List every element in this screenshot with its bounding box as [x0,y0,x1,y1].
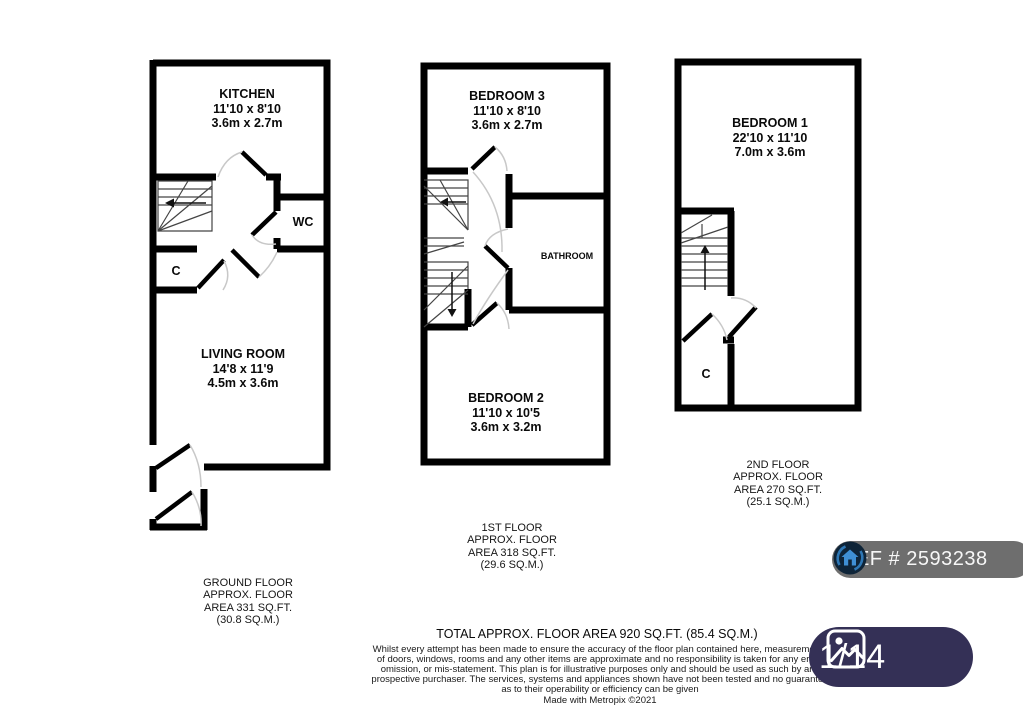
room-dims-metric: 3.6m x 3.2m [468,420,544,435]
room-name: LIVING ROOM [201,347,285,362]
made-with-credit: Made with Metropix ©2021 [543,696,656,706]
wc-door-leaf [252,212,276,235]
stair-outline [424,262,468,289]
ground-floor-area-label: GROUND FLOOR APPROX. FLOOR AREA 331 SQ.F… [203,577,293,626]
door-arc [712,314,727,340]
floor-area-sqft: AREA 318 SQ.FT. [467,547,557,559]
floor-approx: APPROX. FLOOR [203,589,293,601]
room-label-living-room: LIVING ROOM 14'8 x 11'9 4.5m x 3.6m [201,347,285,391]
room-name: BEDROOM 2 [468,391,544,406]
room-dims-imperial: 22'10 x 11'10 [732,131,808,146]
room-name: C [701,367,710,382]
room-dims-imperial: 14'8 x 11'9 [201,362,285,377]
floor-area-sqm: (29.6 SQ.M.) [467,559,557,571]
room-name: BEDROOM 3 [469,89,545,104]
ground-walls [150,60,327,530]
room-label-kitchen: KITCHEN 11'10 x 8'10 3.6m x 2.7m [212,87,283,131]
entrance-door-leaf-lower [156,492,192,519]
floorplan-image: KITCHEN 11'10 x 8'10 3.6m x 2.7m WC C LI… [0,0,1023,717]
floor-name: GROUND FLOOR [203,577,293,589]
floor-approx: APPROX. FLOOR [733,471,823,483]
ground-stairs [158,181,212,231]
door-arc [252,235,276,244]
living-door-leaf [232,250,259,277]
room-dims-metric: 7.0m x 3.6m [732,145,808,160]
stair-arrow-head [440,198,448,207]
door-arc [495,147,507,171]
stair-arrow-head [165,199,174,208]
door-arc [731,298,756,308]
bedroom3-door-leaf [472,147,495,169]
room-dims-imperial: 11'10 x 8'10 [212,102,283,117]
floor-area-sqm: (25.1 SQ.M.) [733,496,823,508]
room-dims-metric: 3.6m x 2.7m [212,116,283,131]
room-name: KITCHEN [212,87,283,102]
house-circle-icon [833,541,867,575]
door-arc [259,252,277,277]
room-name: BEDROOM 1 [732,116,808,131]
room-label-bedroom2: BEDROOM 2 11'10 x 10'5 3.6m x 3.2m [468,391,544,435]
second-floor-plan [678,62,858,408]
door-arc [485,229,508,246]
photo-icon [824,627,868,671]
photo-counter-badge[interactable]: 1/14 [809,627,973,687]
door-arc [223,261,228,290]
floor-area-sqft: AREA 331 SQ.FT. [203,602,293,614]
stair-winder [158,211,212,231]
first-floor-area-label: 1ST FLOOR APPROX. FLOOR AREA 318 SQ.FT. … [467,522,557,571]
stair-landing-line [424,242,464,254]
room-dims-metric: 3.6m x 2.7m [469,118,545,133]
room-dims-imperial: 11'10 x 8'10 [469,104,545,119]
stair-winder [424,266,468,310]
floor-area-sqm: (30.8 SQ.M.) [203,614,293,626]
bathroom-door-leaf [485,246,508,268]
room-dims-imperial: 11'10 x 10'5 [468,406,544,421]
stair-arrow-head [448,309,457,317]
floor-area-sqft: AREA 270 SQ.FT. [733,484,823,496]
stair-winder [424,290,468,327]
room-label-bedroom1: BEDROOM 1 22'10 x 11'10 7.0m x 3.6m [732,116,808,160]
second-floor-area-label: 2ND FLOOR APPROX. FLOOR AREA 270 SQ.FT. … [733,459,823,508]
door-arc [473,270,508,324]
ref-badge: REF # 2593238 [832,541,1023,578]
room-label-bathroom: BATHROOM [541,251,593,261]
first-door-arcs [473,147,509,329]
bedroom2-door-leaf [472,303,497,325]
door-arc [190,445,201,487]
second-doors [683,307,756,341]
kitchen-door-leaf [242,152,266,175]
stair-winder [158,186,212,231]
floor-name: 2ND FLOOR [733,459,823,471]
room-dims-metric: 4.5m x 3.6m [201,376,285,391]
room-label-cupboard-second: C [701,367,710,382]
door-arc [192,492,201,526]
room-name: BATHROOM [541,251,593,261]
total-floor-area: TOTAL APPROX. FLOOR AREA 920 SQ.FT. (85.… [436,627,757,641]
room-name: WC [293,215,314,230]
room-label-cupboard-ground: C [171,264,180,279]
stair-winder [424,186,468,230]
floor-name: 1ST FLOOR [467,522,557,534]
stair-winder [681,215,712,233]
room-label-bedroom3: BEDROOM 3 11'10 x 8'10 3.6m x 2.7m [469,89,545,133]
ground-floor-plan [150,60,327,530]
room-label-wc: WC [293,215,314,230]
cupboard-door-leaf [198,260,224,288]
floor-approx: APPROX. FLOOR [467,534,557,546]
entrance-door-leaf-upper [156,445,190,468]
landing-door-leaf [729,307,756,337]
first-doors [472,147,508,325]
disclaimer-line: as to their operability or efficiency ca… [501,685,698,695]
door-arc [218,152,242,177]
room-name: C [171,264,180,279]
landing-door-leaf [683,314,712,341]
